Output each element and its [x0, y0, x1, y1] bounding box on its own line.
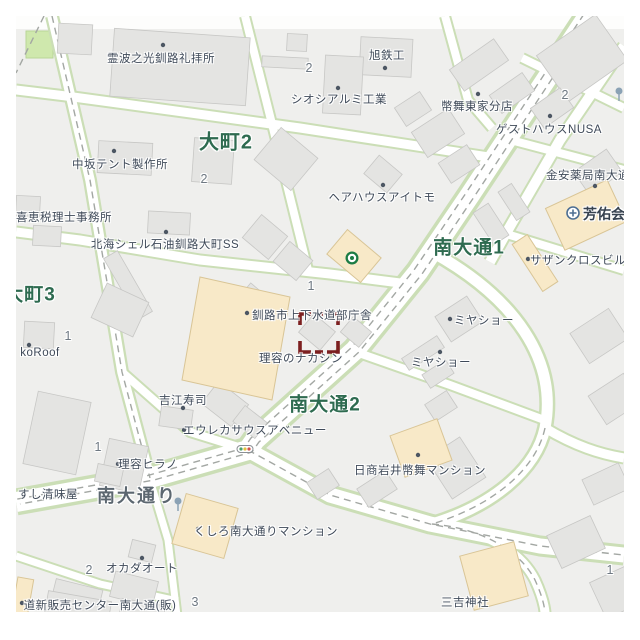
map-screenshot: { "map": { "districts": [ {"text": "大町2"…	[0, 0, 640, 640]
hospital-icon	[567, 207, 579, 219]
park-area	[26, 31, 53, 58]
map-tiles	[16, 16, 624, 612]
shop-icon	[346, 252, 359, 265]
traffic-light-icon	[237, 446, 253, 453]
map-canvas[interactable]: 大町2 大町3 南大通1 南大通2 南大通り 霊波之光釧路礼拝所 旭鉄工 シオシ…	[16, 16, 624, 612]
